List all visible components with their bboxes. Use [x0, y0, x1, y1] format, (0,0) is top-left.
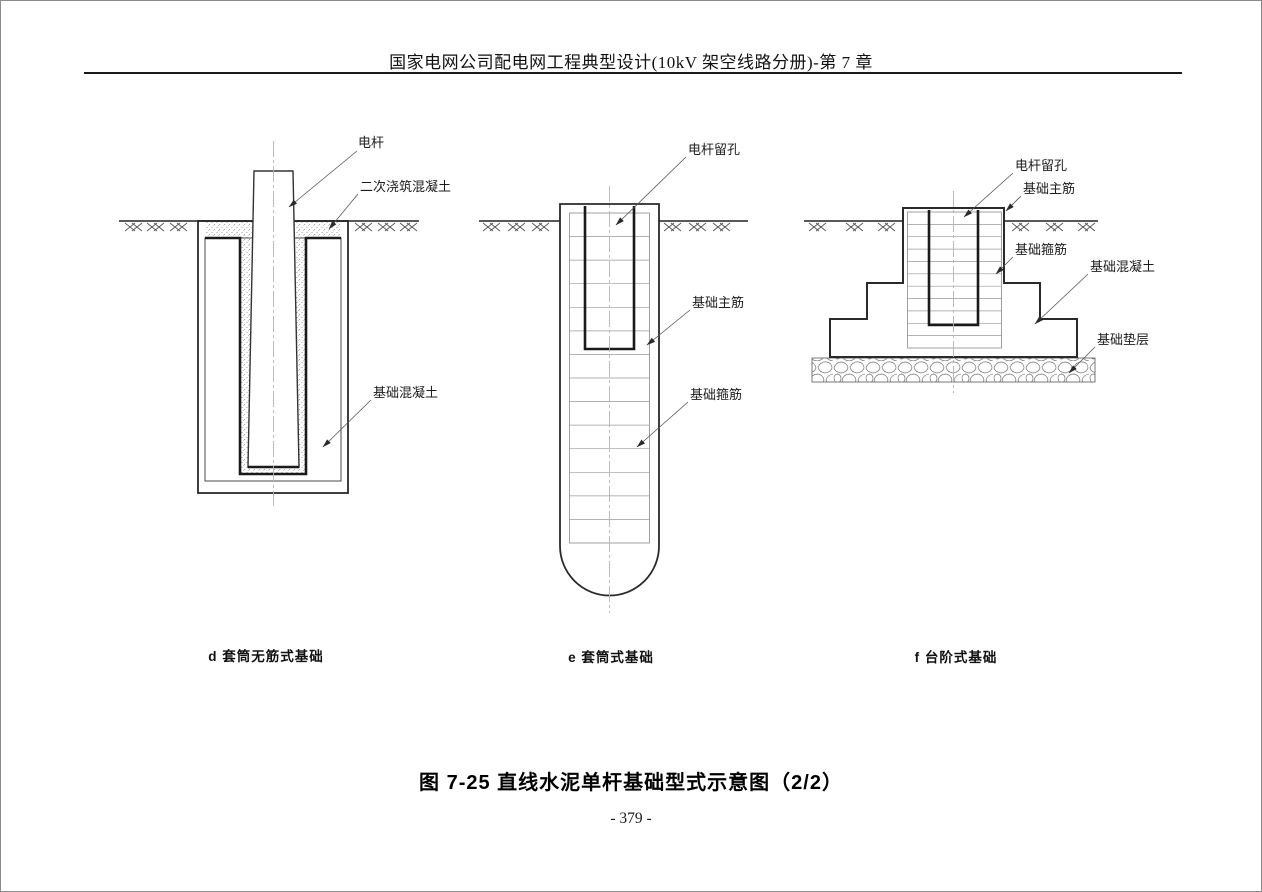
ground-hatch-icon — [1046, 223, 1063, 231]
diagram-e-sleeve-foundation: 电杆留孔 基础主筋 基础箍筋 — [479, 142, 748, 613]
f-main-rebar-leader — [1006, 196, 1021, 211]
d-pole-leader — [289, 151, 357, 207]
ground-hatch-icon — [689, 223, 706, 231]
ground-hatch-icon — [147, 223, 164, 231]
page-number: - 379 - — [1, 810, 1261, 828]
ground-hatch-icon — [1078, 223, 1095, 231]
f-stirrup-label: 基础箍筋 — [1015, 242, 1067, 257]
foundation-diagrams: 电杆 二次浇筑混凝土 基础混凝土 — [1, 1, 1261, 891]
ground-hatch-icon — [483, 223, 500, 231]
diagram-f-stepped-foundation: 电杆留孔 基础主筋 基础箍筋 基础混凝土 基础垫层 — [804, 158, 1155, 393]
ground-hatch-icon — [878, 223, 895, 231]
caption-f: f 台阶式基础 — [846, 646, 1066, 666]
d-secondary-concrete-label: 二次浇筑混凝土 — [360, 179, 451, 194]
ground-hatch-icon — [532, 223, 549, 231]
ground-hatch-icon — [400, 223, 417, 231]
e-main-rebar-label: 基础主筋 — [692, 295, 744, 310]
caption-e: e 套筒式基础 — [501, 646, 721, 666]
ground-hatch-icon — [809, 223, 826, 231]
ground-hatch-icon — [1012, 223, 1029, 231]
e-pole-hole-label: 电杆留孔 — [688, 142, 740, 157]
ground-hatch-icon — [664, 223, 681, 231]
ground-hatch-icon — [713, 223, 730, 231]
ground-hatch-icon — [846, 223, 863, 231]
figure-caption: 图 7-25 直线水泥单杆基础型式示意图（2/2） — [1, 766, 1261, 795]
ground-hatch-icon — [378, 223, 395, 231]
diagram-d-sleeve-plain-foundation: 电杆 二次浇筑混凝土 基础混凝土 — [119, 135, 451, 506]
f-foundation-concrete-label: 基础混凝土 — [1090, 259, 1155, 274]
ground-hatch-icon — [170, 223, 187, 231]
ground-hatch-icon — [125, 223, 142, 231]
f-foundation-concrete-leader — [1035, 274, 1088, 324]
d-pole-label: 电杆 — [358, 135, 384, 150]
f-pole-hole-label: 电杆留孔 — [1015, 158, 1067, 173]
caption-d: d 套筒无筋式基础 — [156, 645, 376, 665]
f-main-rebar-label: 基础主筋 — [1023, 181, 1075, 196]
e-stirrup-label: 基础箍筋 — [690, 387, 742, 402]
d-foundation-concrete-label: 基础混凝土 — [373, 385, 438, 400]
ground-hatch-icon — [508, 223, 525, 231]
f-cushion-label: 基础垫层 — [1097, 332, 1149, 347]
ground-hatch-icon — [355, 223, 372, 231]
document-page: 国家电网公司配电网工程典型设计(10kV 架空线路分册)-第 7 章 — [0, 0, 1262, 892]
